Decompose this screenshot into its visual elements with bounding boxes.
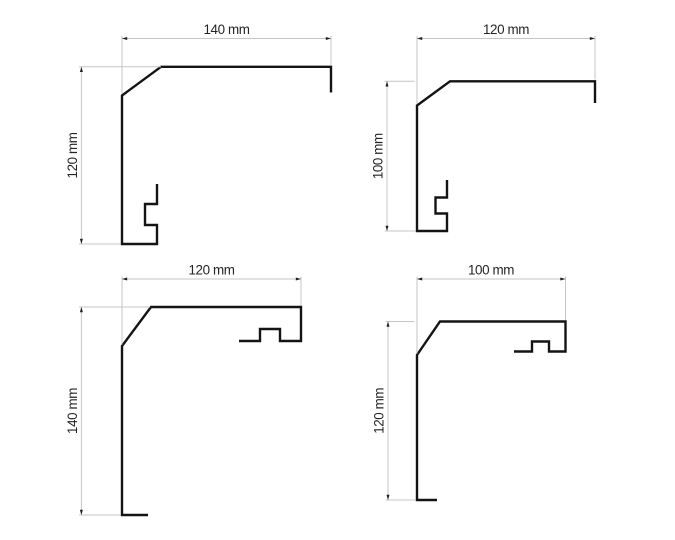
svg-text:100 mm: 100 mm <box>371 133 386 179</box>
svg-text:120 mm: 120 mm <box>372 388 387 434</box>
svg-text:120 mm: 120 mm <box>65 132 80 178</box>
svg-text:120 mm: 120 mm <box>189 263 235 278</box>
svg-text:140 mm: 140 mm <box>65 388 80 434</box>
svg-text:120 mm: 120 mm <box>483 22 529 37</box>
svg-text:100 mm: 100 mm <box>468 263 514 278</box>
svg-text:140 mm: 140 mm <box>204 22 250 37</box>
